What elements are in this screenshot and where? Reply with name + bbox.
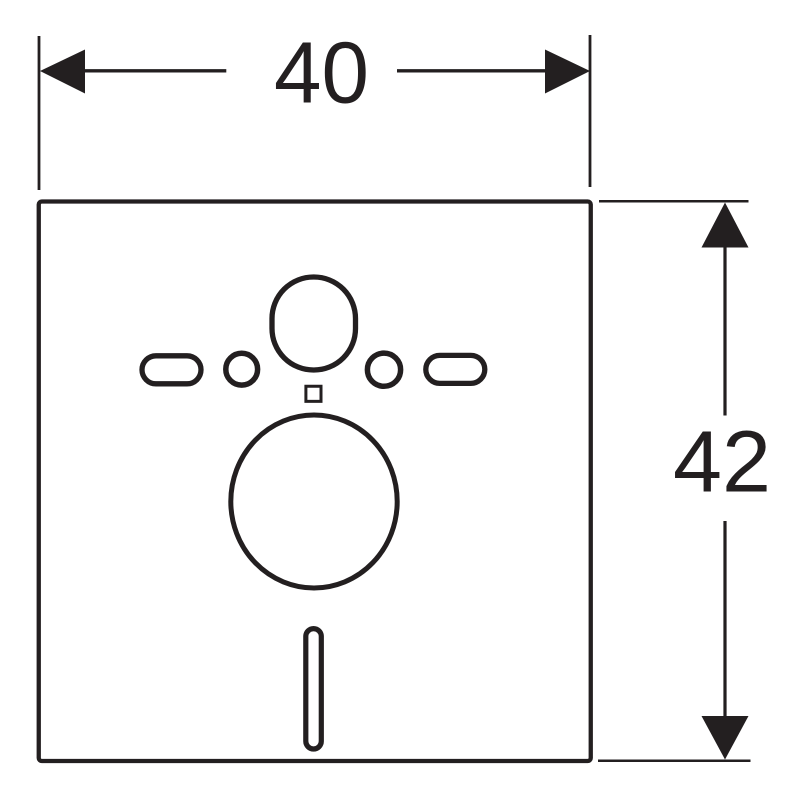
svg-text:42: 42 [673,414,771,511]
svg-text:40: 40 [274,25,369,122]
